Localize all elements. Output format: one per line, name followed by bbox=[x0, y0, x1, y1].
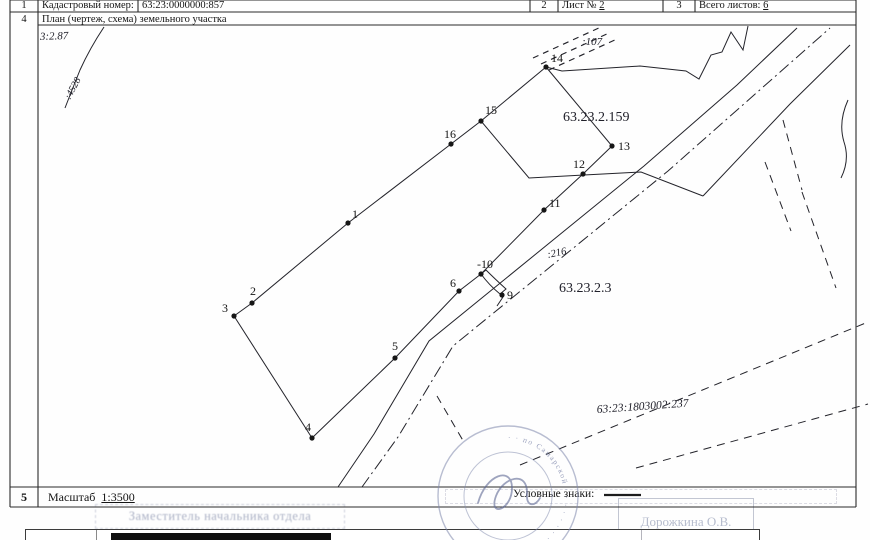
boundary-line bbox=[546, 26, 748, 79]
point-marker bbox=[309, 435, 314, 440]
boundary-curve bbox=[841, 100, 848, 178]
point-number: 5 bbox=[392, 339, 398, 353]
sheet-cell-number: 2 bbox=[530, 0, 558, 12]
boundary-curve bbox=[65, 27, 104, 108]
total-cell-number: 3 bbox=[663, 0, 695, 12]
point-marker bbox=[609, 143, 614, 148]
cutoff-text-bar bbox=[111, 533, 331, 540]
point-number: -10 bbox=[477, 257, 493, 271]
boundary-line bbox=[234, 316, 312, 438]
plan-title: План (чертеж, схема) земельного участка bbox=[42, 13, 227, 26]
point-marker bbox=[448, 141, 453, 146]
hatch-line bbox=[549, 39, 617, 70]
point-number: 14 bbox=[551, 51, 563, 65]
parcel-label: 3:2.87 bbox=[39, 30, 69, 43]
point-number: 2 bbox=[250, 284, 256, 298]
centerline-dashdot bbox=[362, 28, 830, 487]
parcel-label: 63.23.2.3 bbox=[559, 281, 612, 296]
total-sheets-value: 6 bbox=[763, 0, 768, 11]
point-number: 9 bbox=[507, 288, 513, 302]
parcel-label: :107 bbox=[582, 36, 603, 48]
point-number: 1 bbox=[352, 207, 358, 221]
boundary-curve bbox=[481, 270, 506, 294]
total-sheets: Всего листов: 6 bbox=[699, 0, 768, 12]
hatch-line bbox=[533, 27, 601, 58]
boundary-line bbox=[546, 67, 612, 146]
cadastral-number-value: 63:23:0000000:857 bbox=[142, 0, 224, 12]
stamp-ring-text: · · по Самарской · · · · · · · · · · · ·… bbox=[472, 433, 571, 540]
point-number: 6 bbox=[450, 276, 456, 290]
point-number: 11 bbox=[549, 196, 561, 210]
row5-number: 5 bbox=[10, 488, 38, 506]
cutoff-table-divider bbox=[96, 530, 97, 540]
boundary-line bbox=[234, 121, 481, 316]
boundary-line-dashed bbox=[802, 192, 836, 288]
boundary-line-dashed bbox=[437, 396, 465, 444]
boundary-line-dashed bbox=[520, 322, 868, 465]
boundary-curve bbox=[497, 297, 503, 306]
point-marker bbox=[478, 118, 483, 123]
hatch-line bbox=[541, 33, 609, 64]
boundary-line bbox=[481, 121, 703, 196]
row1-number: 1 bbox=[10, 0, 38, 12]
point-number: 3 bbox=[222, 301, 228, 315]
point-marker bbox=[231, 313, 236, 318]
point-number: 15 bbox=[485, 103, 497, 117]
cadastral-plan-sheet: 1 Кадастровый номер: 63:23:0000000:857 2… bbox=[0, 0, 870, 540]
row4-number: 4 bbox=[10, 13, 38, 26]
total-sheets-label: Всего листов: bbox=[699, 0, 763, 11]
point-marker bbox=[456, 288, 461, 293]
boundary-line bbox=[703, 45, 850, 196]
point-marker bbox=[392, 355, 397, 360]
point-marker bbox=[543, 64, 548, 69]
point-number: 16 bbox=[444, 127, 456, 141]
scale-value: 1:3500 bbox=[101, 490, 134, 504]
point-number: 13 bbox=[618, 139, 630, 153]
boundary-line-dashed bbox=[783, 120, 802, 190]
sheet-value: 2 bbox=[599, 0, 604, 11]
point-marker bbox=[580, 171, 585, 176]
scale-label: Масштаб bbox=[48, 490, 98, 504]
parcel-label: :4528 bbox=[63, 76, 84, 102]
boundary-line bbox=[338, 28, 797, 487]
point-marker bbox=[499, 292, 504, 297]
boundary-line bbox=[481, 67, 546, 121]
boundary-line-dashed bbox=[765, 162, 791, 231]
boundary-line bbox=[312, 274, 481, 438]
point-marker bbox=[249, 300, 254, 305]
stamp-outer-ring bbox=[438, 426, 578, 540]
boundary-line-dashed bbox=[636, 404, 868, 468]
point-marker bbox=[345, 220, 350, 225]
sheet-label: Лист № bbox=[562, 0, 599, 11]
point-number: 4 bbox=[305, 420, 311, 434]
cadastral-number-label: Кадастровый номер: bbox=[42, 0, 134, 12]
plan-drawing: 1234569-101112131415163:2.87:4528:10763.… bbox=[0, 0, 870, 540]
parcel-label: 63.23.2.159 bbox=[563, 110, 630, 125]
official-position-ghost: Заместитель начальника отдела bbox=[95, 504, 345, 529]
boundary-line bbox=[481, 146, 612, 274]
point-marker bbox=[541, 207, 546, 212]
point-number: 12 bbox=[573, 157, 585, 171]
cutoff-table-divider2 bbox=[641, 530, 642, 540]
official-name-ghost: Дорожкина О.В. bbox=[618, 498, 754, 533]
cutoff-table bbox=[25, 529, 760, 540]
sheet-number: Лист № 2 bbox=[562, 0, 605, 12]
parcel-label: 63:23:1803002:237 bbox=[596, 398, 690, 416]
parcel-label: :216 bbox=[546, 246, 568, 261]
point-marker bbox=[478, 271, 483, 276]
